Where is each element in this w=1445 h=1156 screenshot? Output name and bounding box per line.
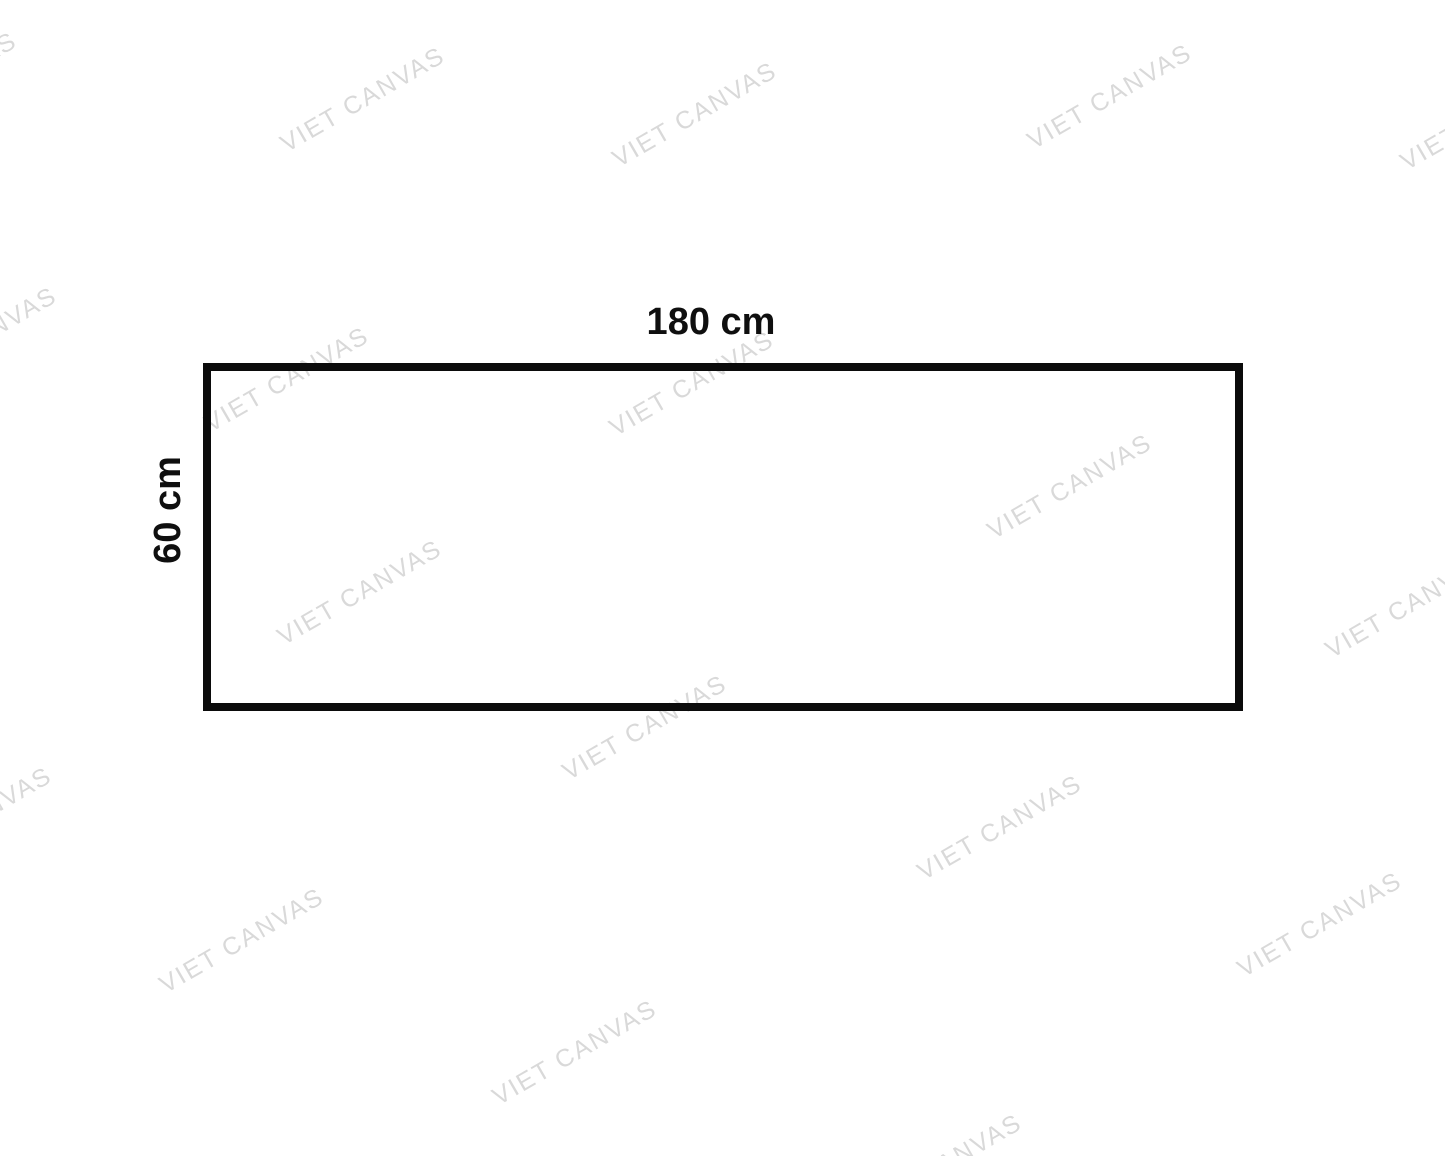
watermark-text: VIET CANVAS [0,26,22,144]
watermark-text: VIET CANVAS [853,1108,1028,1156]
watermark-text: VIET CANVAS [1023,38,1198,156]
height-dimension-label: 60 cm [149,456,187,564]
watermark-text: VIET CANVAS [155,882,330,1000]
watermark-text: VIET CANVAS [913,769,1088,887]
diagram-canvas: VIET CANVASVIET CANVASVIET CANVASVIET CA… [0,0,1445,1156]
watermark-text: VIET CANVAS [1396,59,1445,177]
watermark-text: VIET CANVAS [1233,866,1408,984]
watermark-text: VIET CANVAS [276,41,451,159]
width-dimension-label: 180 cm [647,303,776,341]
dimension-rectangle [203,363,1243,711]
watermark-text: VIET CANVAS [488,994,663,1112]
watermark-text: VIET CANVAS [0,281,62,399]
watermark-text: VIET CANVAS [0,761,57,879]
watermark-text: VIET CANVAS [1321,547,1445,665]
watermark-text: VIET CANVAS [608,56,783,174]
